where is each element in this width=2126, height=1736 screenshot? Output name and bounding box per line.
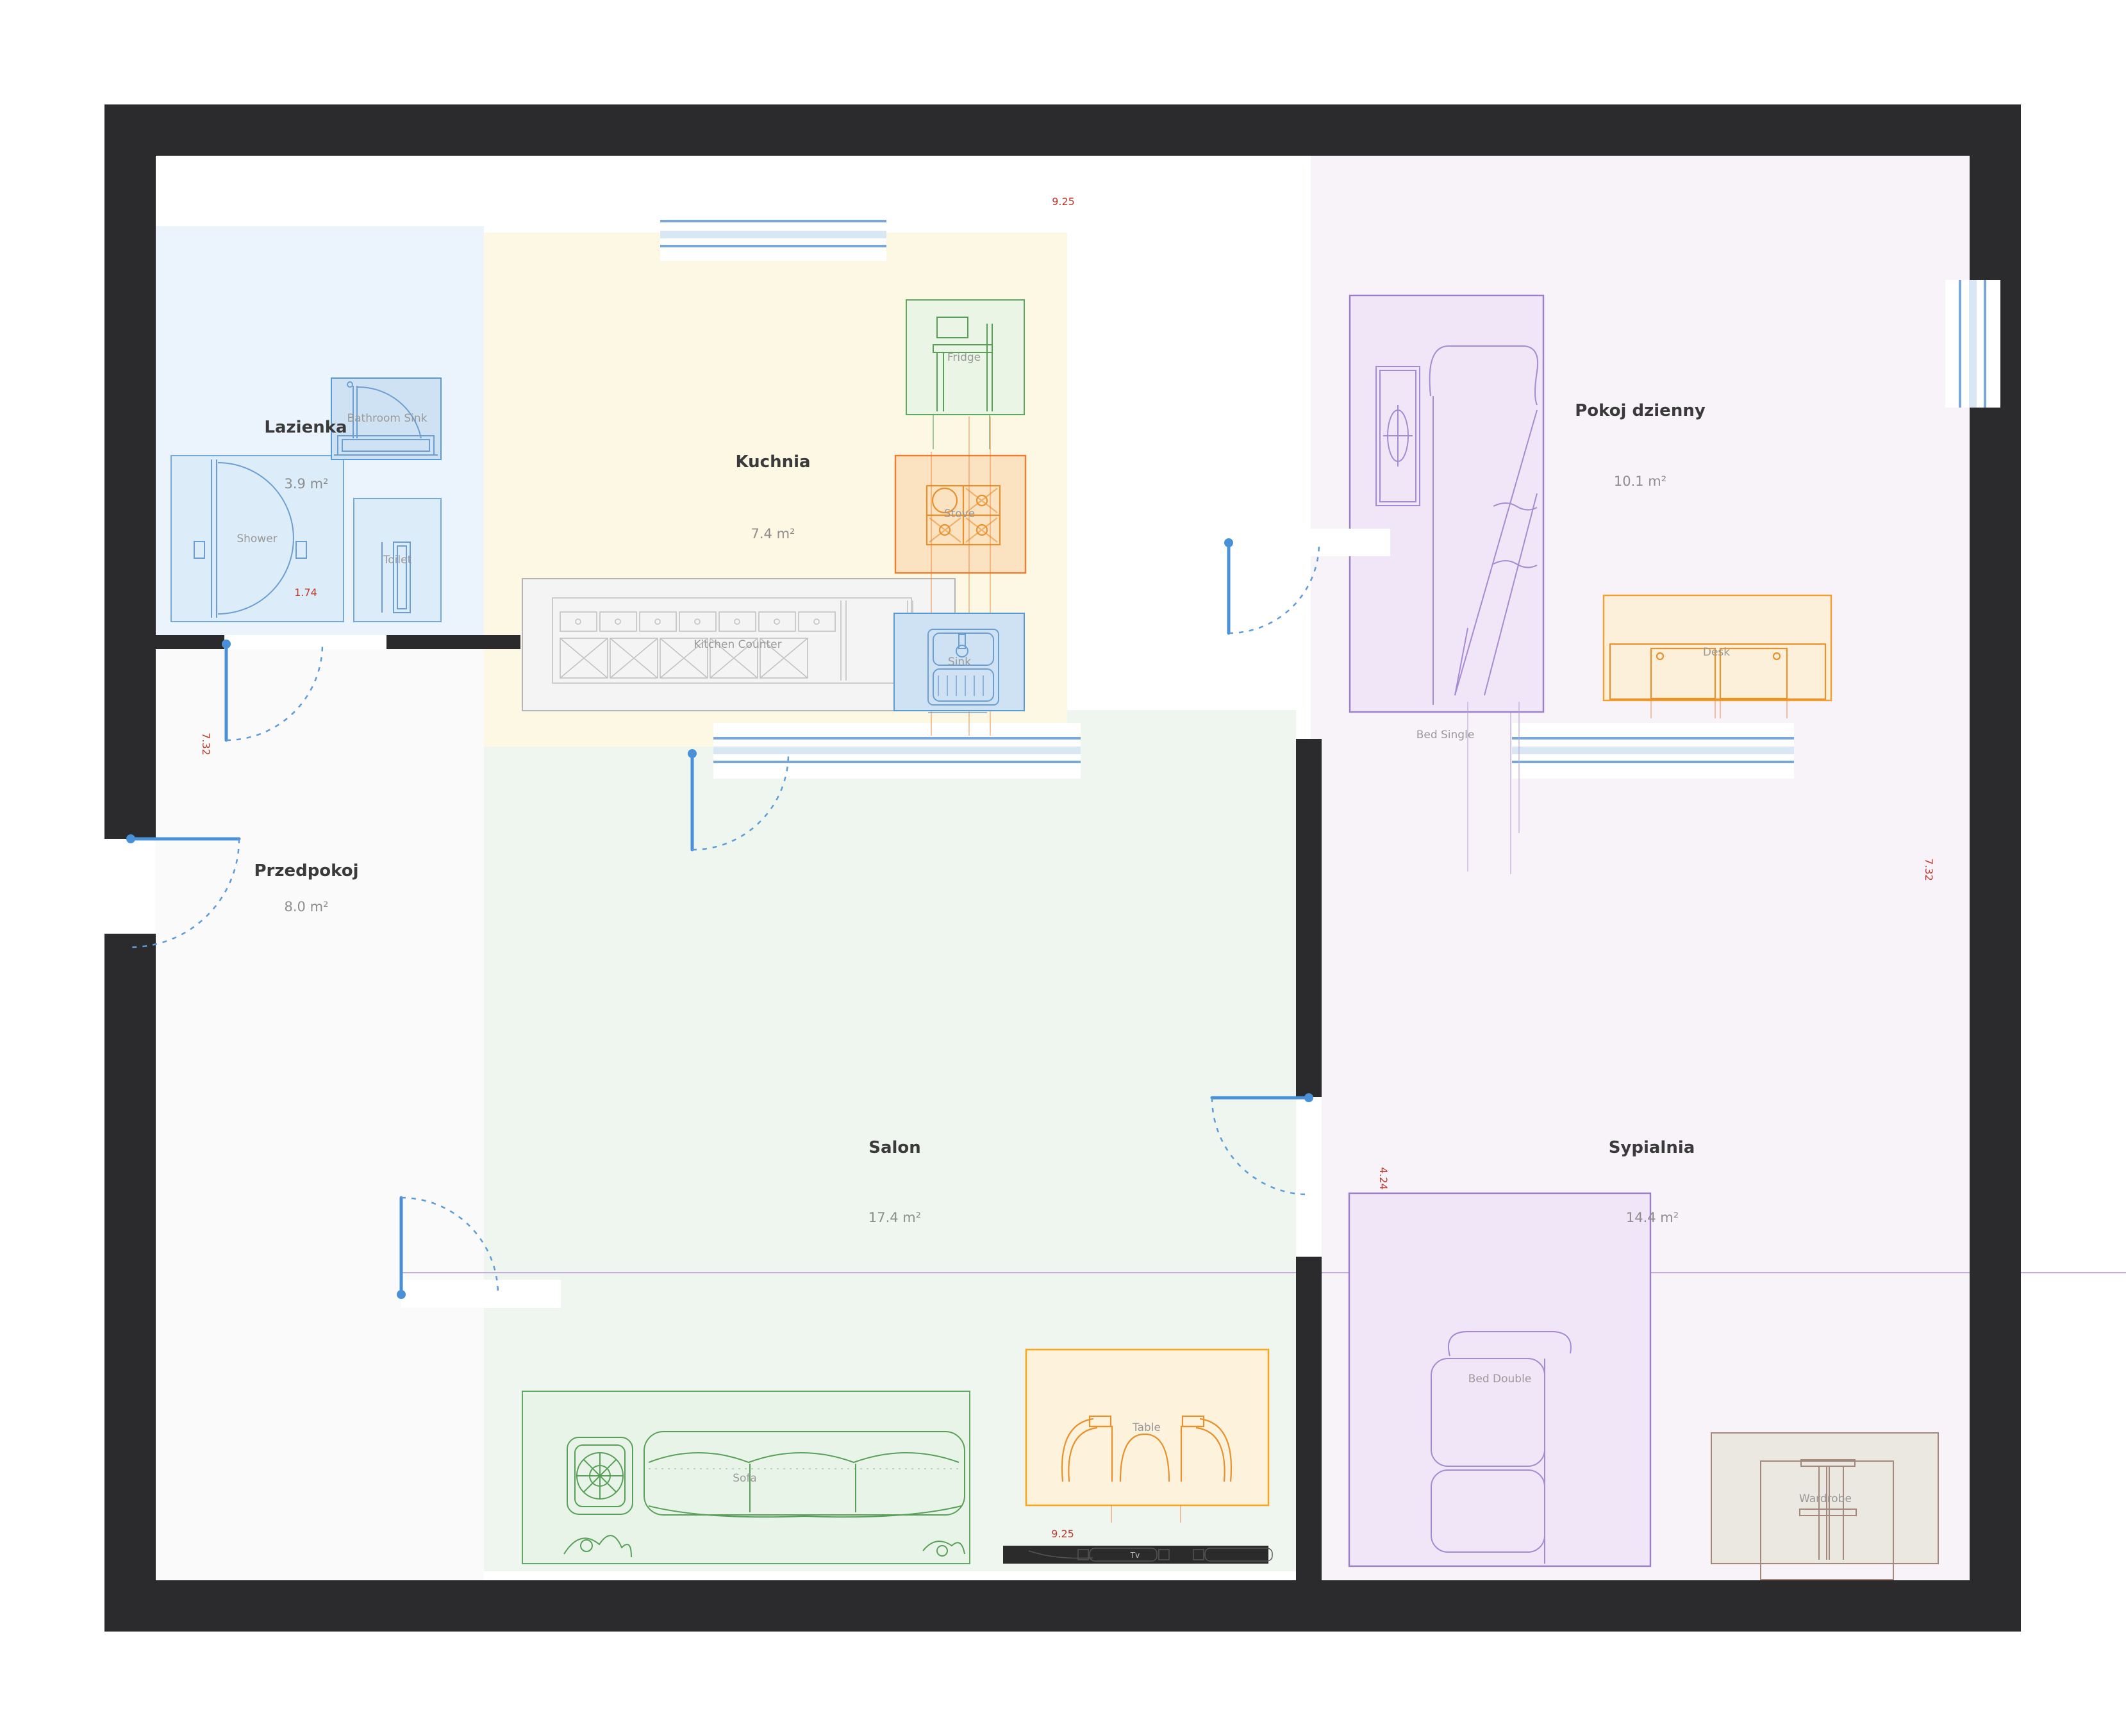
dimension-bathroom-width: 1.74 (294, 586, 317, 599)
label-wardrobe: Wardrobe (1799, 1492, 1852, 1505)
wall-bottom (104, 1580, 2021, 1632)
label-room-bathroom: Lazienka (264, 418, 347, 437)
label-room-hallway: Przedpokoj (254, 861, 358, 880)
furniture-table[interactable] (1026, 1350, 1268, 1523)
door-opening (1296, 1097, 1322, 1257)
label-bed-double: Bed Double (1468, 1373, 1532, 1385)
dimension-height-left: 7.32 (200, 732, 212, 756)
label-shower: Shower (237, 533, 277, 545)
label-area-salon: 17.4 m² (868, 1210, 921, 1225)
door-opening (401, 1280, 561, 1308)
label-bed-single: Bed Single (1416, 729, 1475, 741)
dimension-width-top: 9.25 (1052, 195, 1075, 208)
wall-left-upper (104, 104, 156, 839)
door-hinge (222, 640, 231, 649)
furniture-wardrobe[interactable] (1711, 1433, 1938, 1580)
wall-middle-lower (1296, 1257, 1322, 1580)
label-room-bedroom: Sypialnia (1609, 1138, 1695, 1157)
label-area-living: 10.1 m² (1614, 474, 1666, 489)
label-kitchen-sink: Sink (948, 656, 971, 668)
door-opening (104, 839, 156, 934)
floor-plan-canvas: Lazienka 3.9 m² Kuchnia 7.4 m² Pokoj dzi… (0, 0, 2126, 1736)
door-hinge (688, 749, 697, 758)
label-room-kitchen: Kuchnia (735, 452, 810, 472)
window-kitchen-top[interactable] (660, 215, 886, 261)
door-swing-arc (1229, 543, 1319, 633)
label-area-bedroom: 14.4 m² (1626, 1210, 1679, 1225)
door-opening (1309, 529, 1390, 556)
window-right-wall[interactable] (1945, 280, 2000, 408)
label-area-kitchen: 7.4 m² (751, 526, 795, 541)
label-stove: Stove (944, 508, 975, 520)
label-toilet: Toilet (383, 554, 412, 566)
window-salon[interactable] (713, 723, 1081, 779)
label-tv: Tv (1130, 1551, 1140, 1560)
dimension-height-right: 7.32 (1923, 858, 1935, 881)
wall-top (104, 104, 2021, 156)
door-hinge (1224, 538, 1233, 547)
wall-bathroom-left (156, 635, 224, 649)
wall-bathroom-right (386, 635, 520, 649)
label-room-salon: Salon (868, 1138, 921, 1157)
door-hinge (126, 834, 135, 843)
room-hallway[interactable] (156, 649, 484, 1580)
wall-left-lower (104, 934, 156, 1632)
label-fridge: Fridge (947, 351, 981, 364)
label-area-bathroom: 3.9 m² (285, 476, 329, 492)
label-kitchen-counter: Kitchen Counter (693, 638, 781, 651)
label-area-hallway: 8.0 m² (285, 899, 329, 914)
dimension-bedroom-height: 4.24 (1377, 1167, 1390, 1190)
dimension-width-bottom: 9.25 (1051, 1528, 1074, 1540)
door-hinge (397, 1290, 406, 1299)
wall-middle-upper (1296, 739, 1322, 1097)
label-sofa: Sofa (733, 1472, 757, 1485)
door-hinge (1304, 1093, 1313, 1102)
label-table: Table (1132, 1421, 1161, 1434)
floor-plan-svg: Lazienka 3.9 m² Kuchnia 7.4 m² Pokoj dzi… (0, 0, 2126, 1736)
label-bathroom-sink: Bathroom Sink (347, 412, 427, 425)
label-desk: Desk (1703, 646, 1730, 659)
window-living[interactable] (1512, 723, 1794, 779)
label-room-living: Pokoj dzienny (1575, 401, 1706, 420)
